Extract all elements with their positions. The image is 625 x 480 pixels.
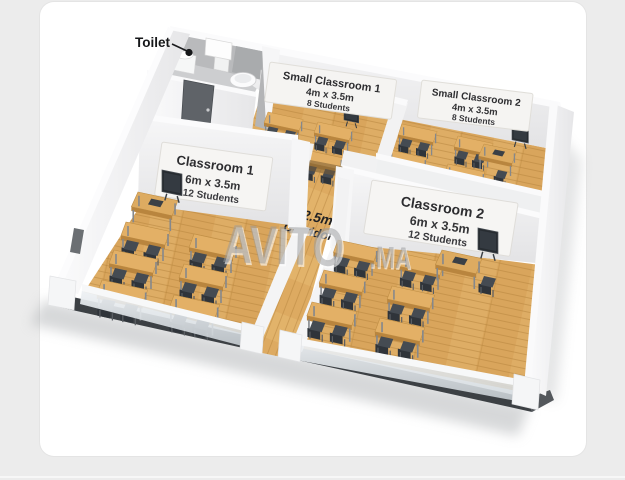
- watermark-suffix: .MA: [369, 240, 412, 275]
- corner-post-front-right: [512, 374, 540, 410]
- post-corridor-left: [240, 322, 264, 354]
- toilet-door-handle: [206, 108, 209, 111]
- post-corridor-right: [278, 330, 302, 362]
- corner-post-front-left: [48, 276, 76, 310]
- watermark-brand: AVITO: [222, 215, 345, 279]
- toilet-flush-panel: [214, 57, 229, 72]
- classroom-floor-plan: 2.5m Corridor: [0, 0, 625, 480]
- toilet-bowl-seat: [235, 74, 252, 83]
- toilet-arrow-dot: [185, 49, 192, 56]
- toilet-label: Toilet: [135, 35, 171, 50]
